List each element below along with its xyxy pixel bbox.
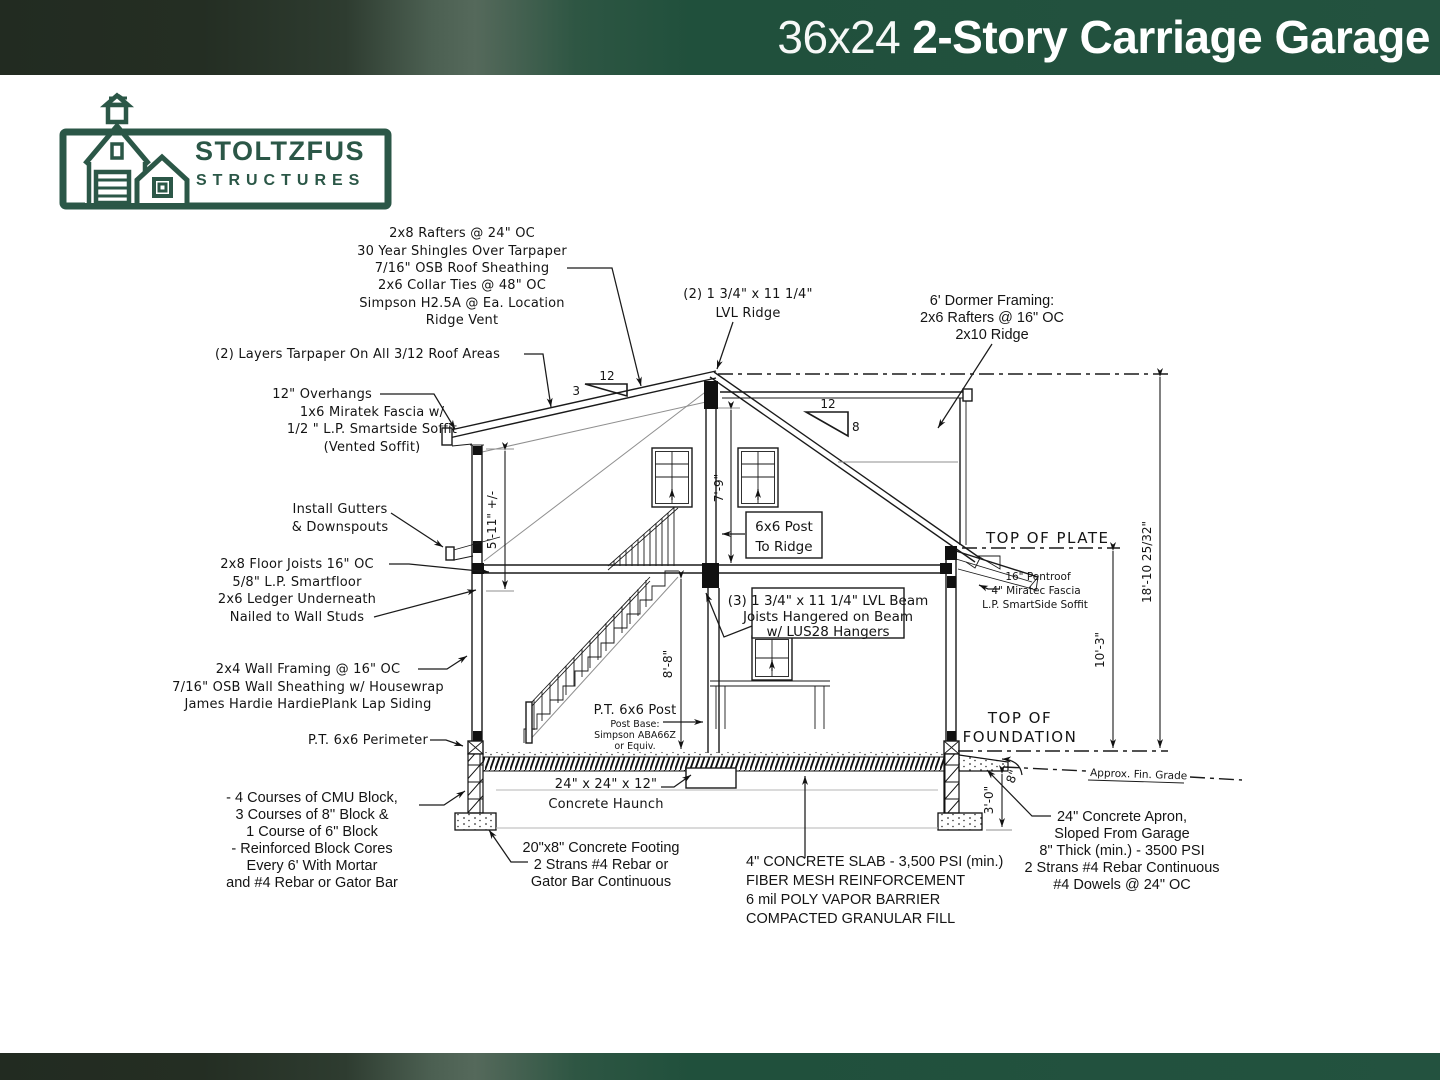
svg-text:FOUNDATION: FOUNDATION <box>963 728 1078 746</box>
note-overhangs: 12" Overhangs 1x6 Miratek Fascia w/ 1/2 … <box>272 387 457 455</box>
svg-text:- 4 Courses of CMU Block,: - 4 Courses of CMU Block, <box>226 790 398 806</box>
label-top-of-plate: TOP OF PLATE <box>985 529 1109 547</box>
section-drawing: 5'-11" +/- 7'-9" 8'-8" 10'-3" 18'-10 25/… <box>0 0 1440 1080</box>
note-floor-joists: 2x8 Floor Joists 16" OC 5/8" L.P. Smartf… <box>218 557 376 625</box>
svg-text:1x6 Miratek Fascia w/: 1x6 Miratek Fascia w/ <box>300 405 445 420</box>
label-top-of-foundation: TOP OF FOUNDATION <box>963 709 1078 746</box>
svg-text:Gator Bar Continuous: Gator Bar Continuous <box>531 874 671 890</box>
note-pentroof: 16" Pentroof 4" Miratec Fascia L.P. Smar… <box>982 571 1088 611</box>
note-wall-framing: 2x4 Wall Framing @ 16" OC 7/16" OSB Wall… <box>172 662 444 712</box>
window-upper-left <box>652 448 692 507</box>
note-gutters: Install Gutters & Downspouts <box>292 502 389 535</box>
roof-structure <box>442 371 980 568</box>
workbench <box>710 681 830 729</box>
svg-text:Sloped From Garage: Sloped From Garage <box>1054 826 1189 842</box>
svg-text:w/ LUS28 Hangers: w/ LUS28 Hangers <box>766 624 889 640</box>
svg-text:5/8" L.P. Smartfloor: 5/8" L.P. Smartfloor <box>232 575 362 590</box>
svg-text:(3) 1 3/4" x 11 1/4" LVL Beam: (3) 1 3/4" x 11 1/4" LVL Beam <box>728 593 929 609</box>
slope-right-run: 12 <box>820 397 835 411</box>
svg-text:1/2 " L.P. Smartside Soffit: 1/2 " L.P. Smartside Soffit <box>287 422 457 437</box>
svg-text:16" Pentroof: 16" Pentroof <box>1005 571 1071 583</box>
svg-text:(Vented Soffit): (Vented Soffit) <box>324 440 421 455</box>
svg-text:Concrete Haunch: Concrete Haunch <box>548 797 663 812</box>
svg-text:2 Strans #4 Rebar or: 2 Strans #4 Rebar or <box>534 857 669 873</box>
dim-ridge-height: 18'-10 25/32" <box>1140 521 1154 603</box>
svg-text:7/16" OSB Wall Sheathing w/ Ho: 7/16" OSB Wall Sheathing w/ Housewrap <box>172 680 444 695</box>
svg-text:P.T. 6x6 Post: P.T. 6x6 Post <box>594 703 677 718</box>
svg-text:- Reinforced Block Cores: - Reinforced Block Cores <box>231 841 392 857</box>
svg-text:2x6 Collar Ties @ 48" OC: 2x6 Collar Ties @ 48" OC <box>378 278 546 293</box>
callout-post-box: 6x6 Post To Ridge <box>746 512 822 558</box>
svg-text:FIBER MESH REINFORCEMENT: FIBER MESH REINFORCEMENT <box>746 873 965 889</box>
svg-text:2 Strans #4 Rebar Continuous: 2 Strans #4 Rebar Continuous <box>1024 860 1219 876</box>
svg-text:6' Dormer Framing:: 6' Dormer Framing: <box>930 293 1054 309</box>
svg-text:3 Courses of 8'' Block &: 3 Courses of 8'' Block & <box>235 807 388 823</box>
svg-text:20"x8" Concrete Footing: 20"x8" Concrete Footing <box>523 840 680 856</box>
svg-text:24" x 24" x 12": 24" x 24" x 12" <box>555 777 657 792</box>
note-lvl-ridge: (2) 1 3/4" x 11 1/4" LVL Ridge <box>683 287 812 321</box>
annotations: 2x8 Rafters @ 24" OC 30 Year Shingles Ov… <box>172 226 1219 927</box>
svg-text:Post Base:: Post Base: <box>610 719 659 730</box>
slope-right-rise: 8 <box>852 420 860 434</box>
foundation <box>455 741 1008 830</box>
svg-text:2x6 Ledger Underneath: 2x6 Ledger Underneath <box>218 592 376 607</box>
level-lines <box>718 374 1242 783</box>
svg-text:4" Miratec Fascia: 4" Miratec Fascia <box>991 585 1080 597</box>
note-apron: 24" Concrete Apron, Sloped From Garage 8… <box>1024 809 1219 893</box>
svg-text:2x6 Rafters @ 16" OC: 2x6 Rafters @ 16" OC <box>920 310 1064 326</box>
svg-text:Ridge Vent: Ridge Vent <box>426 313 499 328</box>
dim-attic-height: 7'-9" <box>712 474 726 502</box>
svg-text:or Equiv.: or Equiv. <box>614 741 655 752</box>
svg-text:Simpson ABA66Z: Simpson ABA66Z <box>594 730 676 741</box>
dim-frost-depth: 3'-0" <box>982 786 996 814</box>
svg-text:2x4 Wall Framing @ 16" OC: 2x4 Wall Framing @ 16" OC <box>216 662 401 677</box>
svg-text:To Ridge: To Ridge <box>754 539 812 555</box>
svg-text:and #4 Rebar or Gator Bar: and #4 Rebar or Gator Bar <box>226 875 398 891</box>
window-upper-right <box>738 448 778 507</box>
dim-plate-height: 10'-3" <box>1093 632 1107 668</box>
note-dormer: 6' Dormer Framing: 2x6 Rafters @ 16" OC … <box>920 293 1064 343</box>
svg-text:8" Thick (min.) - 3500 PSI: 8" Thick (min.) - 3500 PSI <box>1039 843 1204 859</box>
svg-text:L.P. SmartSide Soffit: L.P. SmartSide Soffit <box>982 599 1088 611</box>
svg-text:4" CONCRETE SLAB - 3,500 PSI (: 4" CONCRETE SLAB - 3,500 PSI (min.) <box>746 854 1003 870</box>
note-haunch: 24" x 24" x 12" Concrete Haunch <box>548 777 663 812</box>
dim-first-floor-height: 8'-8" <box>661 650 675 678</box>
note-pt-post: P.T. 6x6 Post Post Base: Simpson ABA66Z … <box>594 703 677 752</box>
dim-apron-thickness: 8" <box>1003 768 1021 785</box>
page: 36x242-Story Carriage Garage STOLTZFUS S… <box>0 0 1440 1080</box>
note-footing: 20"x8" Concrete Footing 2 Strans #4 Reba… <box>523 840 680 890</box>
note-perimeter: P.T. 6x6 Perimeter <box>308 733 428 748</box>
svg-text:Install Gutters: Install Gutters <box>293 502 388 517</box>
svg-text:Nailed to Wall Studs: Nailed to Wall Studs <box>230 610 364 625</box>
svg-text:6 mil POLY VAPOR BARRIER: 6 mil POLY VAPOR BARRIER <box>746 892 940 908</box>
svg-text:24" Concrete Apron,: 24" Concrete Apron, <box>1057 809 1187 825</box>
svg-text:2x8 Floor Joists 16" OC: 2x8 Floor Joists 16" OC <box>220 557 374 572</box>
svg-text:COMPACTED GRANULAR FILL: COMPACTED GRANULAR FILL <box>746 911 955 927</box>
dim-wall-height: 5'-11" +/- <box>485 491 499 549</box>
svg-text:James Hardie HardiePlank Lap S: James Hardie HardiePlank Lap Siding <box>183 697 431 712</box>
svg-text:Every 6' With Mortar: Every 6' With Mortar <box>247 858 378 874</box>
svg-text:12" Overhangs: 12" Overhangs <box>272 387 372 402</box>
svg-text:(2) 1 3/4" x 11 1/4": (2) 1 3/4" x 11 1/4" <box>683 287 812 302</box>
svg-text:LVL Ridge: LVL Ridge <box>715 306 780 321</box>
slope-left-rise: 3 <box>572 384 580 398</box>
svg-text:#4 Dowels @ 24" OC: #4 Dowels @ 24" OC <box>1053 877 1191 893</box>
note-roof-assembly: 2x8 Rafters @ 24" OC 30 Year Shingles Ov… <box>357 226 567 328</box>
svg-text:6x6 Post: 6x6 Post <box>755 519 813 535</box>
window-first-floor <box>752 636 792 680</box>
svg-text:2x10 Ridge: 2x10 Ridge <box>955 327 1028 343</box>
svg-text:TOP OF: TOP OF <box>987 709 1052 727</box>
note-slab: 4" CONCRETE SLAB - 3,500 PSI (min.) FIBE… <box>746 854 1003 927</box>
svg-text:Joists Hangered on Beam: Joists Hangered on Beam <box>742 609 913 625</box>
svg-text:Simpson H2.5A @ Ea. Location: Simpson H2.5A @ Ea. Location <box>359 296 565 311</box>
note-tarpaper: (2) Layers Tarpaper On All 3/12 Roof Are… <box>215 347 500 362</box>
svg-text:30 Year Shingles Over Tarpaper: 30 Year Shingles Over Tarpaper <box>357 244 567 259</box>
slope-left-run: 12 <box>599 369 614 383</box>
svg-text:1 Course of 6" Block: 1 Course of 6" Block <box>246 824 378 840</box>
svg-text:2x8 Rafters @ 24" OC: 2x8 Rafters @ 24" OC <box>389 226 535 241</box>
svg-text:7/16" OSB Roof Sheathing: 7/16" OSB Roof Sheathing <box>375 261 550 276</box>
note-cmu: - 4 Courses of CMU Block, 3 Courses of 8… <box>226 790 398 891</box>
svg-text:& Downspouts: & Downspouts <box>292 520 389 535</box>
callout-beam-box: (3) 1 3/4" x 11 1/4" LVL Beam Joists Han… <box>728 588 929 640</box>
